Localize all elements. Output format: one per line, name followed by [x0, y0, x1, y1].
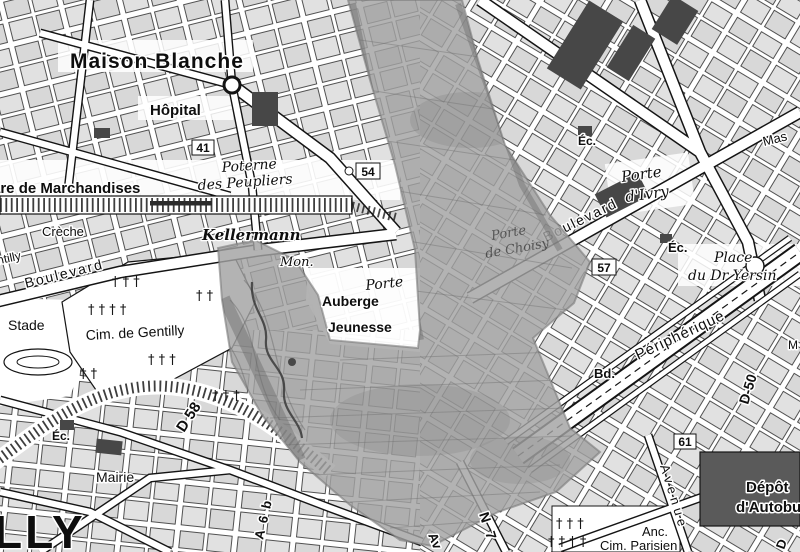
badge-57-number: 57 [597, 261, 611, 275]
cross-row: † † † [556, 517, 584, 532]
dark-building [95, 439, 122, 456]
badge-54-number: 54 [361, 165, 375, 179]
rail-platform [150, 201, 212, 206]
cross-row: † † [80, 367, 98, 382]
overlay-smudge [470, 436, 570, 484]
spot-badge-61: 61 [674, 434, 696, 449]
map-canvas: † † † † † † † † † † † † † † † † † † † † … [0, 0, 800, 552]
cross-row: † † [196, 289, 214, 304]
label-mairie: Mairie [96, 469, 134, 485]
label-hopital: Hôpital [150, 102, 201, 119]
label-cim-parisien: Cim. Parisien [600, 538, 677, 552]
label-ec-mairie: Éc. [52, 428, 70, 443]
label-gentilly-big: LLY [0, 506, 86, 552]
dark-building [94, 128, 110, 138]
cross-row: † † † † [548, 535, 587, 550]
cross-row: † † † [148, 353, 176, 368]
label-jeunesse: Jeunesse [328, 319, 392, 335]
label-anc: Anc. [642, 524, 668, 539]
label-auberge: Auberge [322, 293, 379, 309]
label-ec-top-right: Éc. [578, 133, 596, 148]
cross-row: † † † [212, 389, 240, 404]
map-viewport: † † † † † † † † † † † † † † † † † † † † … [0, 0, 800, 552]
label-ec-ivry: Éc. [668, 240, 688, 255]
cross-row: † † † † [88, 303, 127, 318]
spot-badge-41: 41 [192, 140, 214, 155]
label-gare-marchandises: are de Marchandises [0, 180, 140, 197]
badge-41-number: 41 [196, 141, 210, 155]
label-bd: Bd. [594, 366, 615, 381]
cross-row: † † † [112, 275, 140, 290]
label-m-partial: M [788, 338, 798, 352]
label-depot-line1: Dépôt [746, 479, 789, 496]
label-kellermann: Kellermann [201, 226, 301, 244]
label-place-line1: Place [713, 250, 752, 266]
stade-track [4, 349, 72, 375]
label-maison-blanche: Maison Blanche [70, 50, 244, 73]
label-kellermann-mon: Mon. [279, 255, 314, 270]
label-stade: Stade [8, 317, 45, 333]
spot-badge-57: 57 [592, 259, 616, 275]
maison-blanche-roundabout [224, 77, 240, 93]
label-place-line2: du Dr Yersin [688, 268, 776, 284]
overlay-pond [288, 358, 296, 366]
label-creche: Crèche [42, 224, 84, 239]
dark-building-hospital [252, 92, 278, 126]
label-depot-line2: d'Autobus [736, 499, 800, 516]
badge-61-number: 61 [678, 435, 692, 449]
